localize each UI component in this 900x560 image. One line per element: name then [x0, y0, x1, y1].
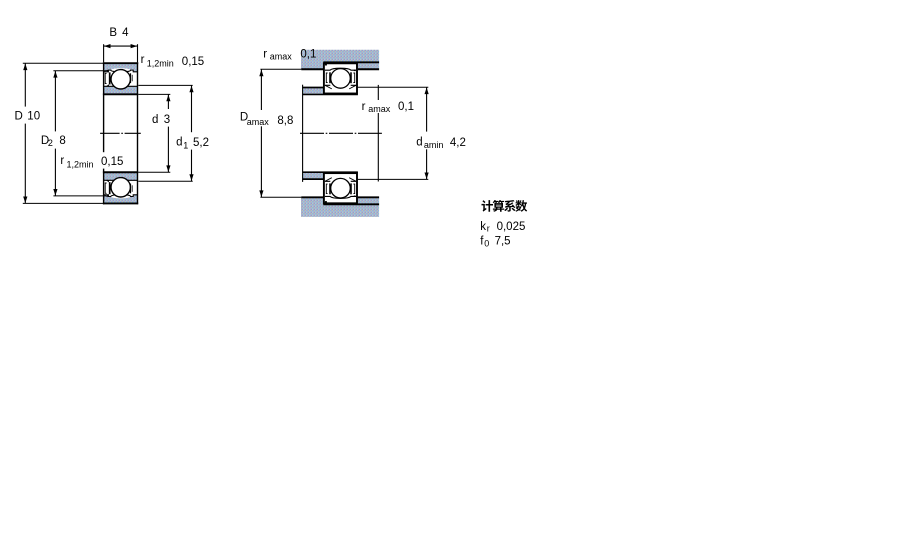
- svg-text:1,2min: 1,2min: [67, 159, 94, 169]
- svg-text:0,15: 0,15: [182, 56, 204, 68]
- svg-text:r: r: [487, 223, 490, 233]
- svg-text:k: k: [480, 221, 486, 233]
- svg-text:d: d: [152, 114, 158, 126]
- svg-text:0: 0: [484, 239, 489, 249]
- svg-text:8: 8: [59, 135, 65, 147]
- svg-text:2: 2: [48, 138, 53, 148]
- svg-text:d: d: [176, 137, 182, 149]
- svg-text:0,1: 0,1: [300, 49, 316, 61]
- svg-text:7,5: 7,5: [495, 236, 511, 248]
- svg-text:r: r: [141, 54, 145, 66]
- svg-text:amax: amax: [368, 104, 391, 114]
- svg-text:B: B: [109, 27, 117, 39]
- svg-text:amax: amax: [247, 117, 270, 127]
- svg-text:r: r: [60, 155, 64, 167]
- svg-text:1: 1: [183, 141, 188, 151]
- svg-text:r: r: [263, 49, 267, 61]
- svg-text:D: D: [15, 110, 23, 122]
- svg-text:3: 3: [164, 114, 170, 126]
- svg-text:4: 4: [122, 27, 129, 39]
- svg-text:5,2: 5,2: [193, 137, 209, 149]
- svg-text:amax: amax: [270, 52, 293, 62]
- svg-text:r: r: [362, 101, 366, 113]
- svg-text:0,15: 0,15: [101, 156, 123, 168]
- svg-text:8,8: 8,8: [277, 115, 293, 127]
- svg-text:0,025: 0,025: [497, 221, 526, 233]
- svg-text:amin: amin: [424, 140, 444, 150]
- svg-text:0,1: 0,1: [398, 101, 414, 113]
- svg-text:1,2min: 1,2min: [147, 59, 174, 69]
- svg-text:10: 10: [27, 110, 40, 122]
- svg-text:4,2: 4,2: [450, 137, 466, 149]
- svg-text:d: d: [416, 136, 422, 148]
